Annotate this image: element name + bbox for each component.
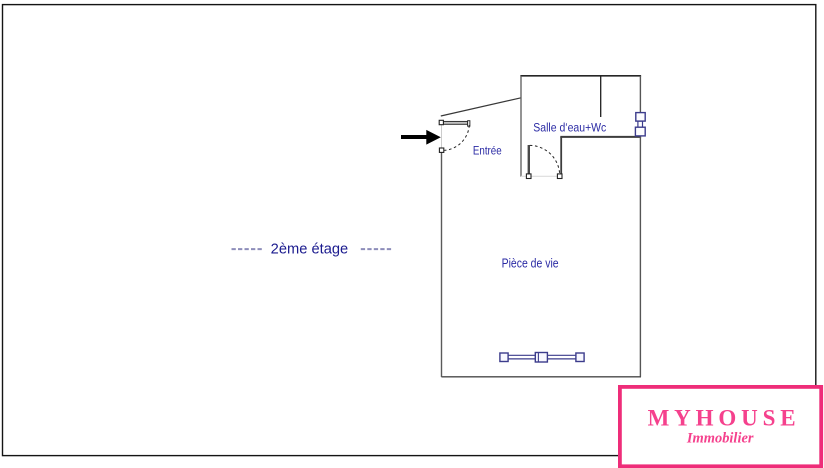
- svg-text:Salle d‘eau+Wc: Salle d‘eau+Wc: [533, 121, 606, 135]
- svg-text:Pièce de vie: Pièce de vie: [502, 256, 559, 271]
- svg-text:2ème étage: 2ème étage: [271, 241, 349, 257]
- svg-text:Immobilier: Immobilier: [686, 431, 754, 447]
- svg-text:Entrée: Entrée: [473, 145, 502, 158]
